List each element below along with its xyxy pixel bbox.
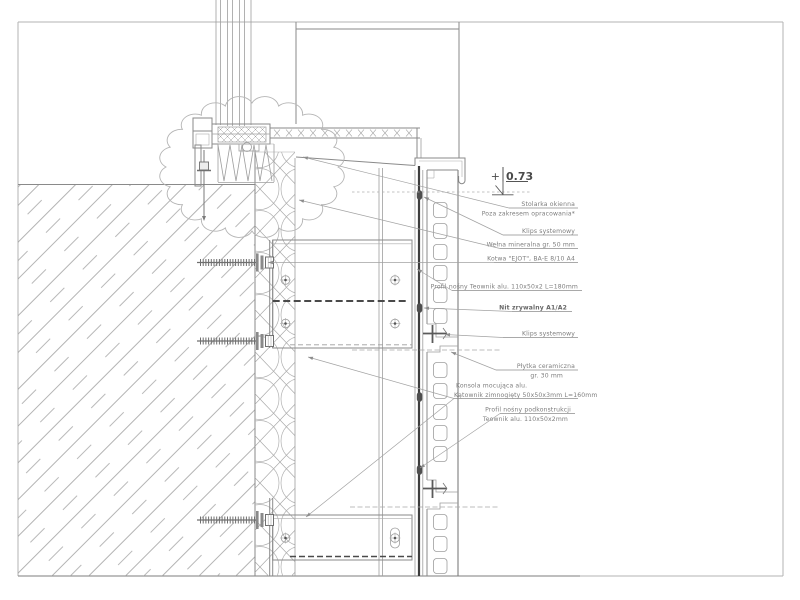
mineral-wool-insulation (255, 152, 295, 576)
leader-line (308, 357, 454, 399)
facade-detail-drawing: + 0.73 Stolarka okiennaPoza zakresem opr… (0, 0, 800, 600)
leader-line (306, 399, 454, 518)
ceramic-panel (427, 170, 458, 576)
panel-hollow-core (434, 537, 448, 552)
panel-hollow-core (434, 426, 448, 441)
bolt-icon (390, 318, 401, 329)
rivet (417, 392, 422, 402)
leader-arrow (451, 352, 456, 355)
window-mullion (216, 0, 251, 126)
panel-hollow-core (434, 405, 448, 420)
annotation-text-klips-2: Klips systemowy (522, 331, 575, 338)
annotation-text-welna: Wełna mineralna gr. 50 mm (487, 242, 575, 249)
annotation-text-stolarka: Stolarka okienna (521, 201, 575, 208)
panel-hollow-core (434, 559, 448, 574)
leader-line (420, 414, 500, 469)
rivet (417, 303, 422, 313)
concrete-wall-section (18, 150, 255, 576)
leader-arrow (299, 200, 304, 203)
annotation-text-plytka: Płytka ceramiczna (517, 363, 575, 370)
leader-arrow (308, 357, 313, 360)
annotation-text-kotwa: Kotwa "EJOT", BA-E 8/10 A4 (487, 256, 575, 263)
level-mark: + 0.73 (491, 167, 533, 195)
annotation-text-nit: Nit zrywalny A1/A2 (499, 305, 567, 312)
panel-hollow-core (434, 245, 448, 260)
bolt-icon (390, 533, 401, 544)
annotation-text-profil-podkonstrukcja: Profil nośny podkonstrukcji (485, 406, 571, 414)
rivet (417, 190, 422, 200)
panel-hollow-core (434, 224, 448, 239)
bolt-icon (390, 275, 401, 286)
panel-hollow-core (434, 363, 448, 378)
system-clip (423, 480, 447, 498)
leader-line (299, 200, 500, 249)
panel-hollow-core (434, 515, 448, 530)
level-symbol-icon (492, 182, 514, 195)
level-sign: + (491, 170, 500, 183)
annotation-text-konsola: Kątownik zimnogięty 50x50x3mm L=160mm (454, 392, 597, 399)
annotation-text-stolarka: Poza zakresem opracowania* (482, 211, 575, 218)
panel-hollow-core (434, 266, 448, 281)
system-clip (423, 325, 447, 343)
panel-hollow-core (434, 309, 448, 324)
annotation-text-plytka: gr. 30 mm (530, 373, 563, 380)
leader-arrow (303, 157, 308, 160)
drawing-canvas: + 0.73 Stolarka okiennaPoza zakresem opr… (0, 0, 800, 600)
panel-clips (417, 190, 447, 498)
annotation-text-konsola: Konsola mocująca alu. (456, 383, 527, 390)
annotation-text-profil-teownik: Profil nośny Teownik alu. 110x50x2 L=180… (431, 283, 578, 291)
annotation-text-klips-1: Klips systemowy (522, 228, 575, 235)
